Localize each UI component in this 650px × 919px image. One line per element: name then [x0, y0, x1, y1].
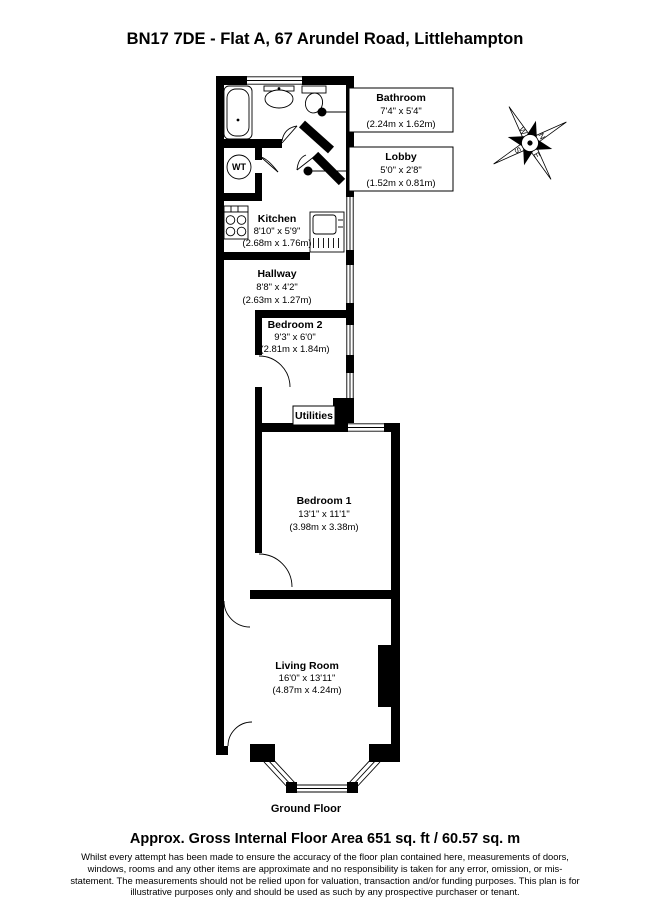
window-hallway-right: [346, 265, 354, 303]
chimney-breast: [378, 645, 392, 707]
wall-diagonal-lobby: [315, 155, 342, 182]
bay-window-bottom: [295, 785, 350, 792]
bedroom1-label-name: Bedroom 1: [297, 495, 352, 507]
bedroom1-label-imperial: 13'1" x 11'1": [298, 509, 349, 520]
window-bedroom1-top: [348, 423, 384, 432]
wall-left: [216, 76, 224, 755]
wall-bottom-left-stub: [216, 746, 228, 755]
bay-corner-right: [369, 744, 400, 762]
hob-icon: [224, 206, 248, 239]
door-bedroom2: [259, 356, 290, 387]
door-bathroom: [282, 126, 297, 143]
wall-right-seg: [346, 355, 354, 373]
living-room-label-imperial: 16'0" x 13'11": [279, 673, 336, 684]
bath-icon: [224, 86, 252, 139]
gross-internal-area: Approx. Gross Internal Floor Area 651 sq…: [0, 831, 650, 847]
door-living-room: [224, 601, 250, 627]
wall-bedroom2-left: [255, 387, 262, 423]
disclaimer-text: Whilst every attempt has been made to en…: [66, 851, 584, 898]
floorplan-page: BN17 7DE - Flat A, 67 Arundel Road, Litt…: [0, 0, 650, 919]
bedroom2-label-imperial: 9'3" x 6'0": [274, 332, 316, 343]
window-bedroom2-right-2: [346, 373, 354, 398]
kitchen-label-name: Kitchen: [258, 213, 297, 225]
ground-floor-label: Ground Floor: [271, 803, 342, 815]
wall-bathroom-bottom: [216, 139, 282, 148]
bay-corner-left: [250, 744, 275, 762]
wall-bedroom1-left: [255, 432, 262, 553]
bathroom-label-imperial: 7'4" x 5'4": [380, 106, 422, 117]
wall-wt-nub: [255, 147, 262, 160]
living-room-label-name: Living Room: [275, 660, 339, 672]
hallway-label-metric: (2.63m x 1.27m): [242, 295, 311, 306]
door-bedroom1: [259, 554, 292, 587]
bedroom2-label-name: Bedroom 2: [268, 319, 323, 331]
bedroom2-label-metric: (2.81m x 1.84m): [260, 344, 329, 355]
wall-diagonal-bathroom: [302, 124, 331, 150]
bathroom-label-metric: (2.24m x 1.62m): [366, 119, 435, 130]
kitchen-sink-icon: [310, 212, 344, 252]
door-wt: [261, 157, 278, 172]
wall-kitchen-top: [216, 193, 262, 201]
bedroom1-label-metric: (3.98m x 3.38m): [289, 522, 358, 533]
lobby-label-imperial: 5'0" x 2'8": [380, 165, 422, 176]
compass-rose-icon: N E S W: [473, 86, 588, 201]
hallway-label-imperial: 8'8" x 4'2": [256, 282, 298, 293]
wall-right-wide: [391, 423, 400, 755]
door-living-room-bay: [228, 722, 252, 746]
floor-plan-canvas: Bathroom 7'4" x 5'4" (2.24m x 1.62m) Lob…: [0, 0, 650, 919]
bay-window-left: [264, 756, 296, 790]
wall-bedroom1-living: [250, 590, 400, 599]
bay-window-right: [348, 756, 380, 790]
basin-icon: [264, 86, 294, 108]
wall-wt-nub: [255, 173, 262, 195]
utilities-label: Utilities: [295, 410, 333, 422]
window-kitchen-right: [346, 197, 354, 250]
bathroom-label-name: Bathroom: [376, 92, 426, 104]
window-bathroom-top: [247, 76, 302, 85]
hallway-label-name: Hallway: [257, 268, 296, 280]
window-bedroom2-right-1: [346, 325, 354, 355]
wall-kitchen-bottom: [216, 252, 310, 260]
living-room-label-metric: (4.87m x 4.24m): [272, 685, 341, 696]
wt-label: WT: [232, 162, 246, 172]
lobby-label-name: Lobby: [385, 151, 417, 163]
kitchen-label-imperial: 8'10" x 5'9": [254, 226, 301, 237]
lobby-label-metric: (1.52m x 0.81m): [366, 178, 435, 189]
wall-bedroom2-top: [255, 310, 354, 318]
kitchen-label-metric: (2.68m x 1.76m): [242, 238, 311, 249]
wall-right-seg: [346, 250, 354, 265]
